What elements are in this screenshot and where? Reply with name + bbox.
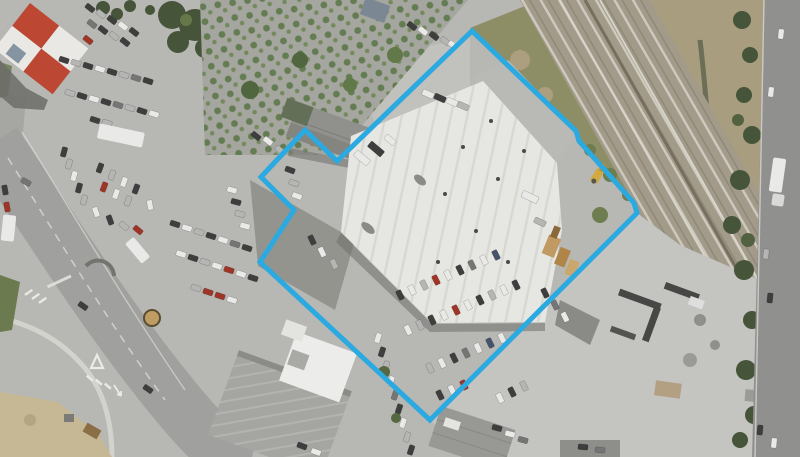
aerial-imagery bbox=[0, 0, 800, 457]
tank-structure bbox=[144, 310, 160, 326]
map-container bbox=[0, 0, 800, 457]
